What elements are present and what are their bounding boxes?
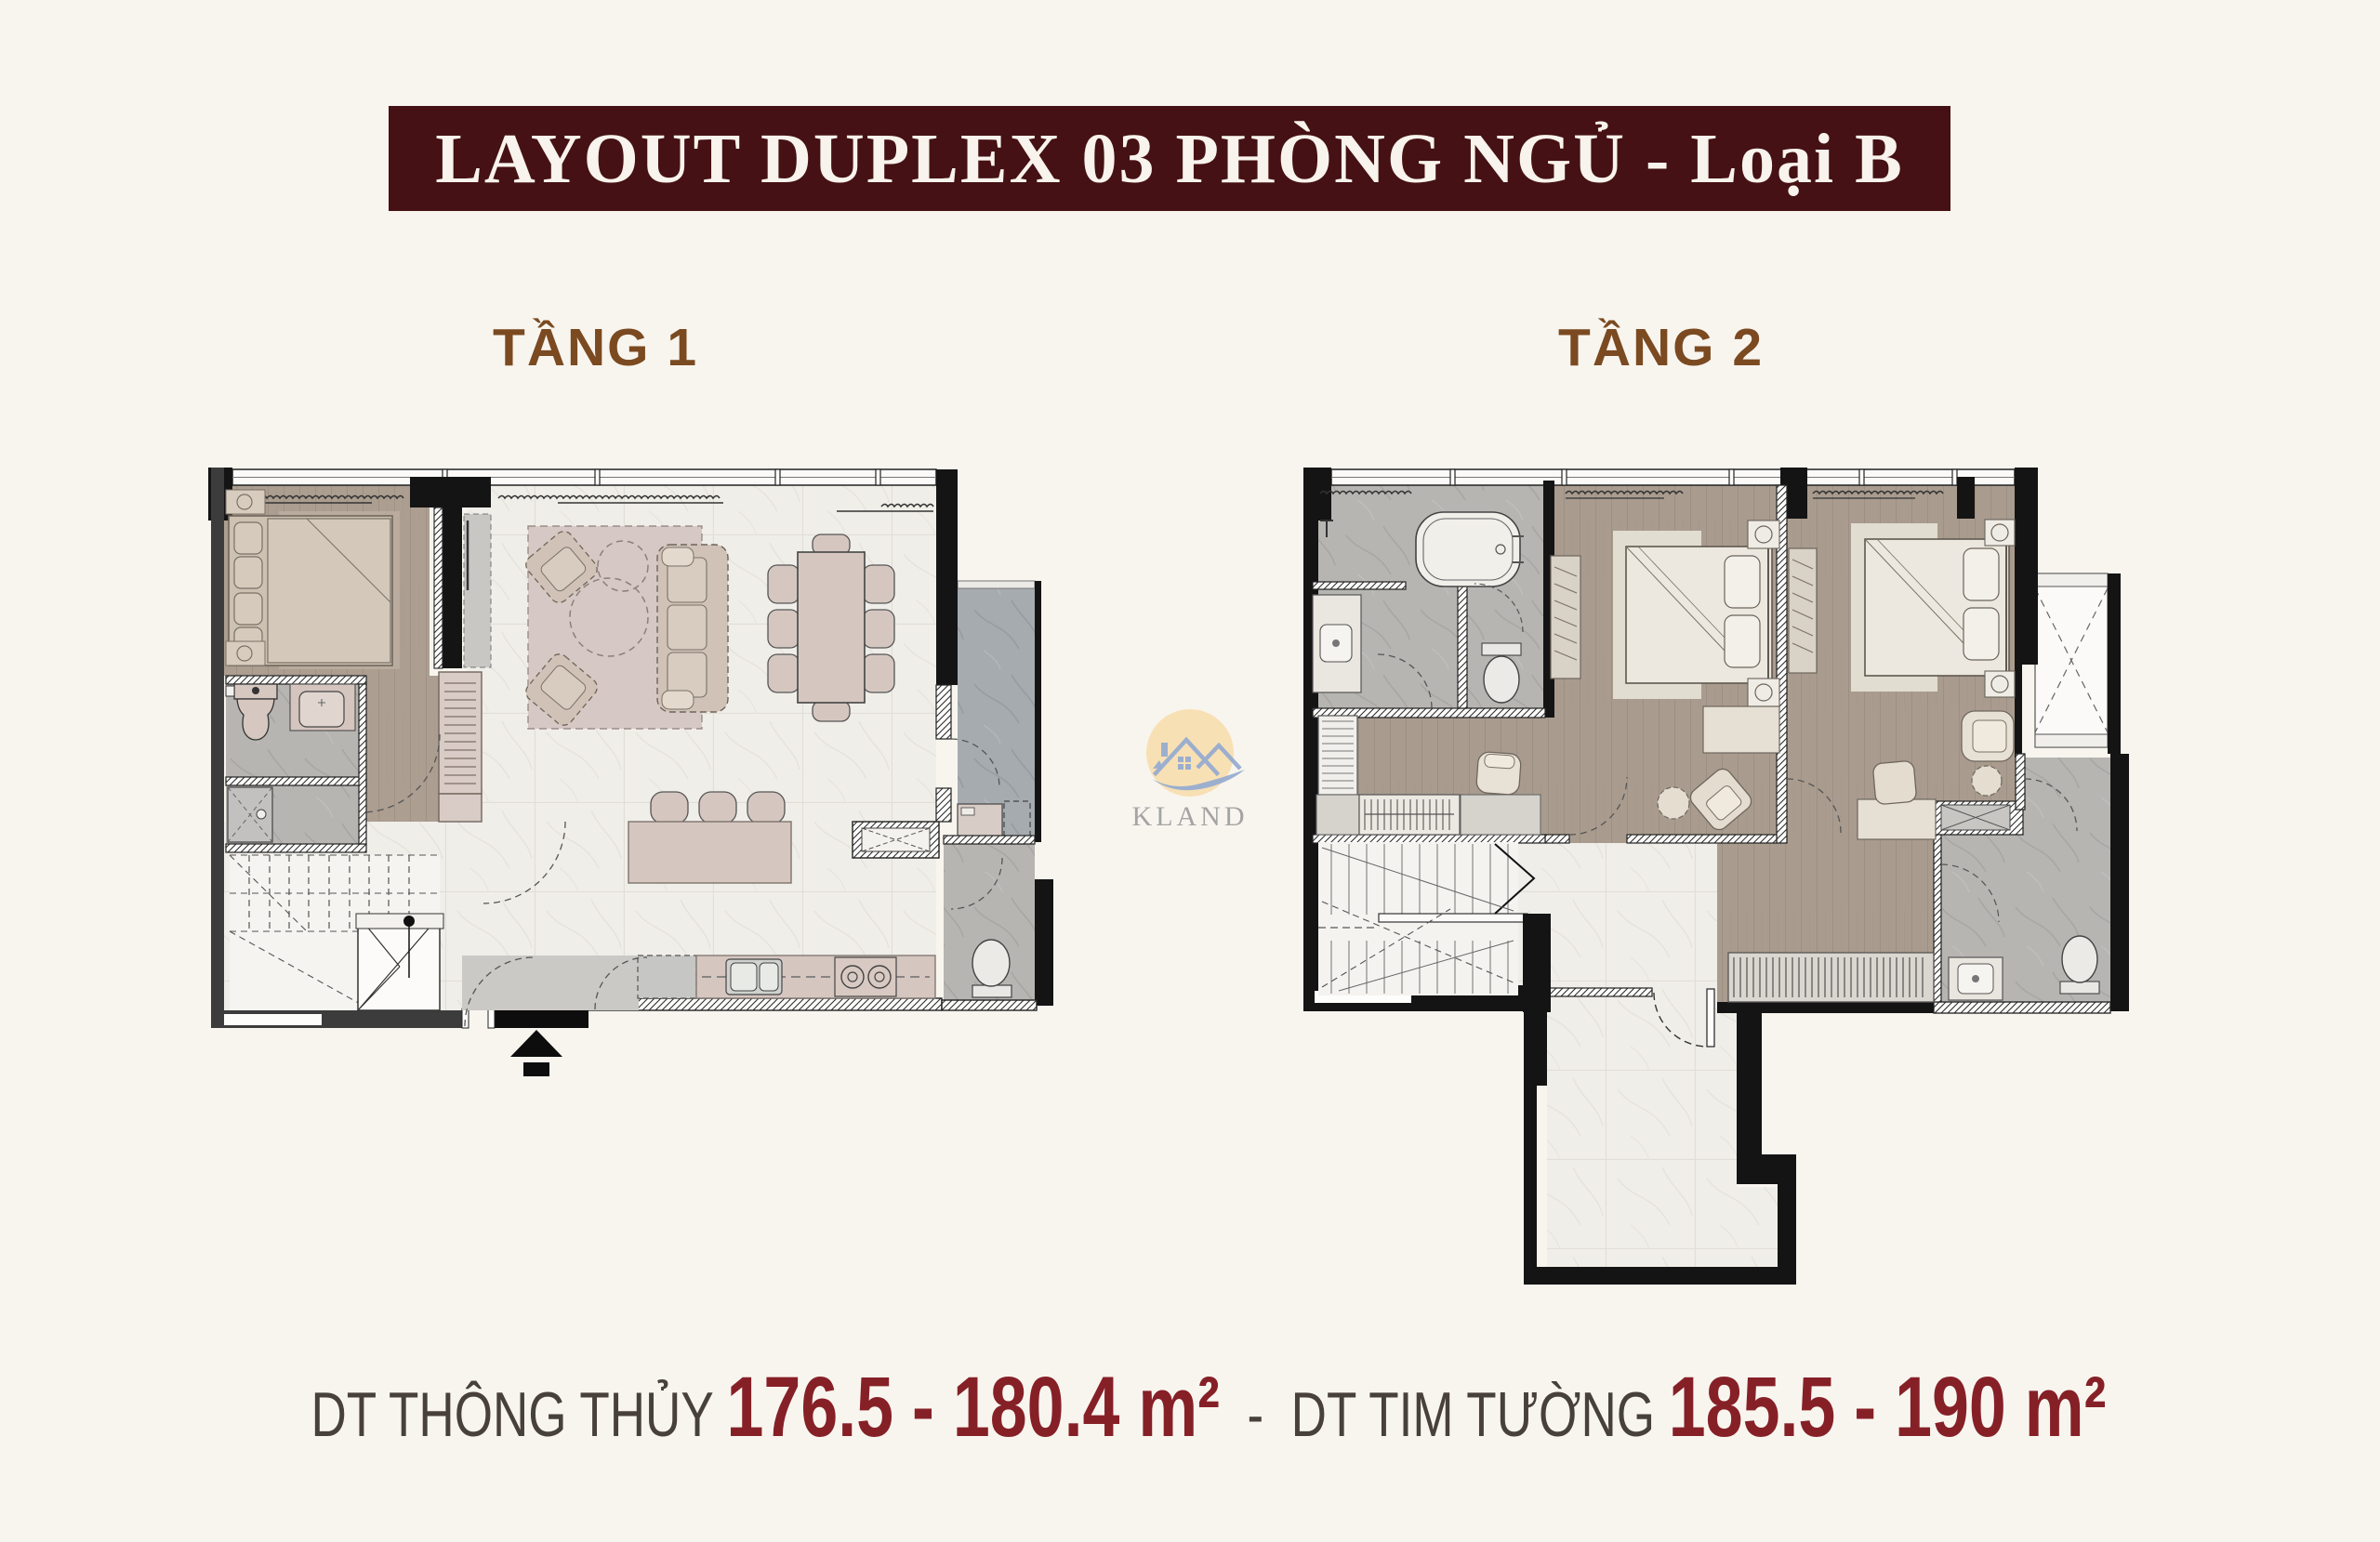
svg-text:KLAND: KLAND bbox=[1132, 801, 1249, 832]
